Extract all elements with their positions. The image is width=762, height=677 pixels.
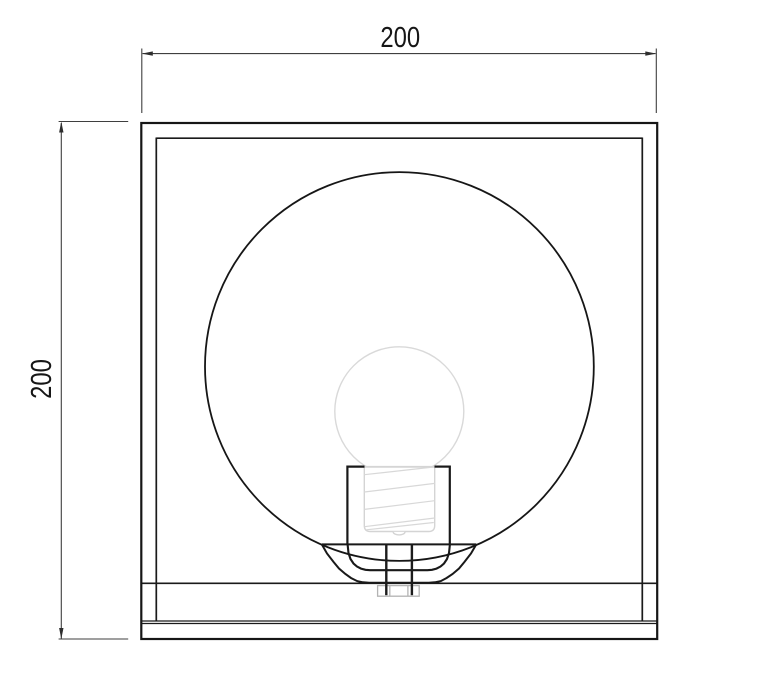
svg-text:200: 200 (25, 359, 57, 399)
svg-text:200: 200 (380, 21, 420, 53)
